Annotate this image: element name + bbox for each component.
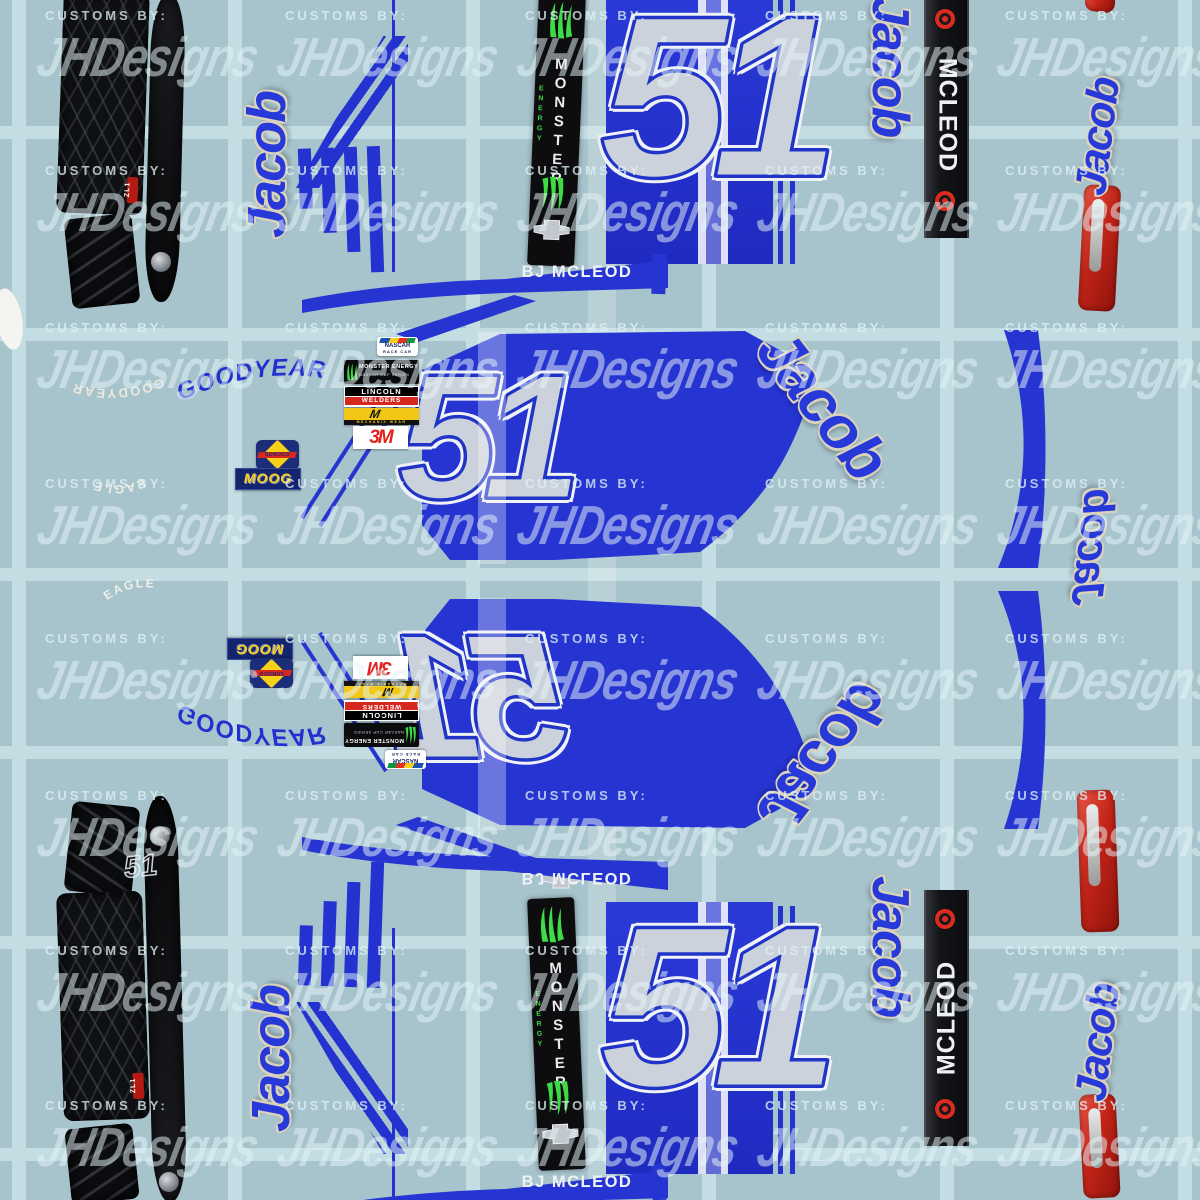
tow-hook-icon [934, 8, 956, 30]
goodyear-tire-arc: GOODYEAR [45, 364, 168, 410]
mechanix-text: MECHANIX WEAR [344, 681, 419, 686]
sunoco-decal-mirrored: SUNOCO [250, 658, 293, 688]
monster-cup-decal: MONSTER ENERGY NASCAR CUP SERIES [344, 360, 419, 384]
livery-template-canvas: ZL1 Jacob MONSTER ENERGY 51 BJ MCLEOD [0, 0, 1200, 1200]
roof-number: 51 [600, 0, 824, 212]
nascar-racecar-decal-mirrored: NASCAR RACE CAR [385, 750, 426, 769]
nascar-racecar-decal: NASCAR RACE CAR [377, 337, 418, 356]
bumper-vent-part [64, 1123, 140, 1200]
bumper-vent-part [63, 213, 140, 310]
nascar-decal-line1: NASCAR [385, 756, 426, 763]
grid-line-v [1178, 0, 1192, 1200]
monster-wordmark: MONSTER [547, 960, 569, 1081]
monster-cup-decal-mirrored: MONSTER ENERGY NASCAR CUP SERIES [344, 723, 419, 747]
mechanix-m-icon: M [382, 685, 395, 698]
driver-name-banner: BJ MCLEOD [292, 1166, 674, 1200]
svg-text:EAGLE: EAGLE [90, 472, 148, 500]
mechanix-wear-decal-mirrored: M MECHANIX WEAR [344, 681, 419, 698]
monster-claw-icon [539, 175, 567, 212]
3m-decal: 3M [353, 426, 408, 449]
roof-rail-name-text: MCLEOD [932, 58, 961, 172]
monster-cup-line2: NASCAR CUP SERIES [354, 730, 404, 735]
tail-light-part [1077, 789, 1120, 932]
driver-name-text: BJ MCLEOD [492, 263, 662, 282]
jacob-quarter-text: Jacob [1066, 11, 1138, 198]
monster-cup-line1: MONSTER ENERGY [359, 364, 418, 370]
svg-text:GOODYEAR: GOODYEAR [173, 354, 328, 406]
watermark-prefix: CUSTOMS BY: [285, 8, 515, 23]
jacob-fender-text: Jacob [236, 0, 298, 238]
monster-cup-line2: NASCAR CUP SERIES [359, 372, 409, 377]
zl1-badge: ZL1 [127, 177, 139, 203]
roof-rail-name-text: MCLEOD [932, 961, 961, 1075]
tail-light-reflector [1086, 804, 1101, 887]
lincoln-line1: LINCOLN [345, 387, 418, 396]
roof-rail-name-bar: MCLEOD [924, 0, 969, 238]
pinstripe-line [392, 0, 395, 272]
jacob-fender-text: Jacob [240, 892, 302, 1132]
nascar-decal-line2: RACE CAR [385, 752, 426, 756]
chevrolet-bowtie-icon [533, 217, 570, 243]
tail-light-part [1078, 184, 1122, 312]
sunoco-decal: SUNOCO [256, 440, 299, 470]
lincoln-welders-decal: LINCOLN WELDERS [344, 386, 419, 407]
grille-part: ZL1 [56, 891, 150, 1122]
driver-name-banner: BJ MCLEOD [292, 256, 674, 314]
monster-claw-icon [346, 363, 358, 381]
zl1-badge: ZL1 [132, 1073, 144, 1099]
eagle-tire-arc: EAGLE [101, 569, 177, 606]
energy-wordmark: ENERGY [534, 991, 544, 1071]
tail-light-reflector [1088, 1108, 1103, 1169]
pinstripe-line [392, 928, 395, 1200]
chevrolet-bowtie-icon [542, 1121, 579, 1147]
lincoln-line1: LINCOLN [345, 711, 418, 720]
sunoco-text: SUNOCO [250, 670, 293, 676]
jacob-quarter-text-mirrored: Jacob [1060, 423, 1132, 610]
monster-cup-line1: MONSTER ENERGY [345, 737, 404, 743]
svg-text:EAGLE: EAGLE [101, 575, 158, 603]
tow-hook-icon [934, 908, 956, 930]
jacob-windshield-text: Jacob [860, 0, 920, 236]
energy-wordmark: ENERGY [534, 85, 544, 165]
monster-claw-icon [547, 0, 575, 41]
3m-decal-mirrored: 3M [353, 656, 408, 679]
banner-end-block [651, 254, 666, 294]
lincoln-welders-decal-mirrored: LINCOLN WELDERS [344, 700, 419, 721]
tow-hook-icon [934, 1098, 956, 1120]
sunoco-text: SUNOCO [256, 452, 299, 458]
ghost-number-outline: 51 [122, 848, 159, 885]
nascar-decal-line2: RACE CAR [377, 350, 418, 354]
roof-rail-name-bar: MCLEOD [924, 890, 969, 1146]
driver-name-banner-mirrored: BJ MCLEOD [292, 836, 674, 894]
headlight-strip-part [144, 0, 186, 302]
driver-name-text: BJ MCLEOD [492, 868, 662, 887]
lincoln-line2: WELDERS [345, 397, 418, 405]
roof-number: 51 [600, 892, 824, 1122]
lincoln-line2: WELDERS [345, 702, 418, 710]
headlamp-icon [149, 826, 170, 847]
monster-claw-icon [545, 1079, 573, 1116]
monster-claw-icon [405, 726, 417, 744]
jacob-quarter-text: Jacob [1066, 923, 1137, 1104]
monster-claw-icon [537, 904, 565, 945]
eagle-tire-arc: EAGLE [74, 465, 149, 503]
nascar-bar-icon [379, 338, 416, 343]
banner-end-block [651, 1164, 666, 1200]
tail-light-part [1078, 1093, 1120, 1199]
nascar-bar-icon [387, 763, 424, 768]
moog-decal-mirrored: MOOG [227, 638, 293, 660]
moog-decal: MOOG [235, 468, 301, 490]
mechanix-wear-decal: M MECHANIX WEAR [344, 408, 419, 425]
panel-light-band [478, 332, 506, 564]
grid-line-v [12, 0, 26, 1200]
grille-part: ZL1 [56, 0, 150, 215]
mechanix-text: MECHANIX WEAR [344, 420, 419, 425]
svg-text:GOODYEAR: GOODYEAR [69, 372, 167, 403]
svg-text:GOODYEAR: GOODYEAR [173, 699, 328, 751]
driver-name-text: BJ MCLEOD [492, 1173, 662, 1192]
panel-light-band [478, 598, 506, 830]
tail-light-reflector [1089, 199, 1105, 273]
monster-b-post-strip: MONSTER ENERGY [527, 0, 586, 267]
headlamp-icon [159, 1172, 180, 1193]
jacob-windshield-text: Jacob [860, 876, 920, 1200]
monster-wordmark: MONSTER [548, 56, 570, 177]
tow-hook-icon [934, 190, 956, 212]
headlamp-icon [151, 252, 172, 273]
